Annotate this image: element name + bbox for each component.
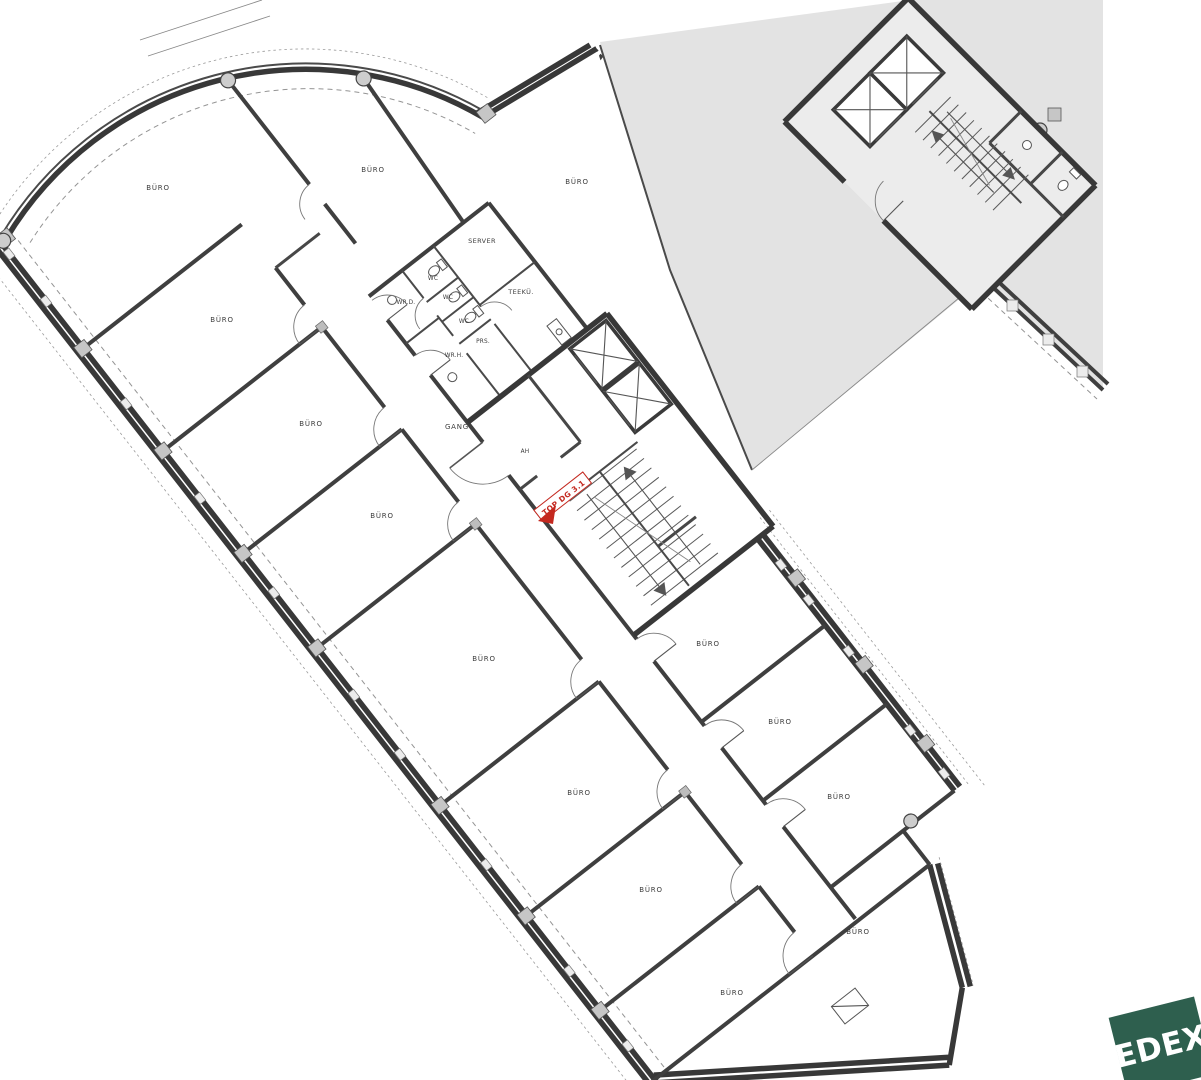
room-label-wc-3: WC <box>459 319 469 325</box>
room-label-buero-14: BÜRO <box>846 927 870 936</box>
room-label-abstellraum: AH <box>521 449 530 455</box>
room-label-prs: PRS. <box>476 339 490 345</box>
room-label-buero-4: BÜRO <box>210 315 234 324</box>
room-label-buero-13: BÜRO <box>827 792 851 801</box>
room-label-buero-12: BÜRO <box>768 717 792 726</box>
room-label-teekueche: TEEKÜ. <box>507 287 534 296</box>
room-label-wc-2: WC <box>443 295 453 301</box>
room-label-buero-8: BÜRO <box>567 788 591 797</box>
room-label-buero-11: BÜRO <box>696 639 720 648</box>
room-label-buero-1: BÜRO <box>146 183 170 192</box>
room-label-gang: GANG <box>445 423 469 431</box>
window-tick <box>1043 334 1054 345</box>
room-label-wr-d: WR.D. <box>397 300 416 306</box>
room-label-wc-1: WC <box>428 276 438 282</box>
window-tick <box>1077 366 1088 377</box>
room-label-buero-7: BÜRO <box>472 654 496 663</box>
room-label-buero-5: BÜRO <box>299 419 323 428</box>
pilaster <box>1048 108 1061 121</box>
floor-plan-drawing: TOP DG 3.1 BÜROBÜROBÜROBÜROBÜROBÜROBÜROB… <box>0 0 1201 1080</box>
room-label-wr-h: WR.H. <box>445 353 464 359</box>
floor-plan-page: TOP DG 3.1 BÜROBÜROBÜROBÜROBÜROBÜROBÜROB… <box>0 0 1201 1080</box>
room-label-buero-10: BÜRO <box>720 988 744 997</box>
room-label-buero-9: BÜRO <box>639 885 663 894</box>
window-tick <box>1007 300 1018 311</box>
room-label-server: SERVER <box>468 237 496 245</box>
room-label-buero-2: BÜRO <box>361 165 385 174</box>
room-label-buero-6: BÜRO <box>370 511 394 520</box>
room-label-buero-3: BÜRO <box>565 177 589 186</box>
